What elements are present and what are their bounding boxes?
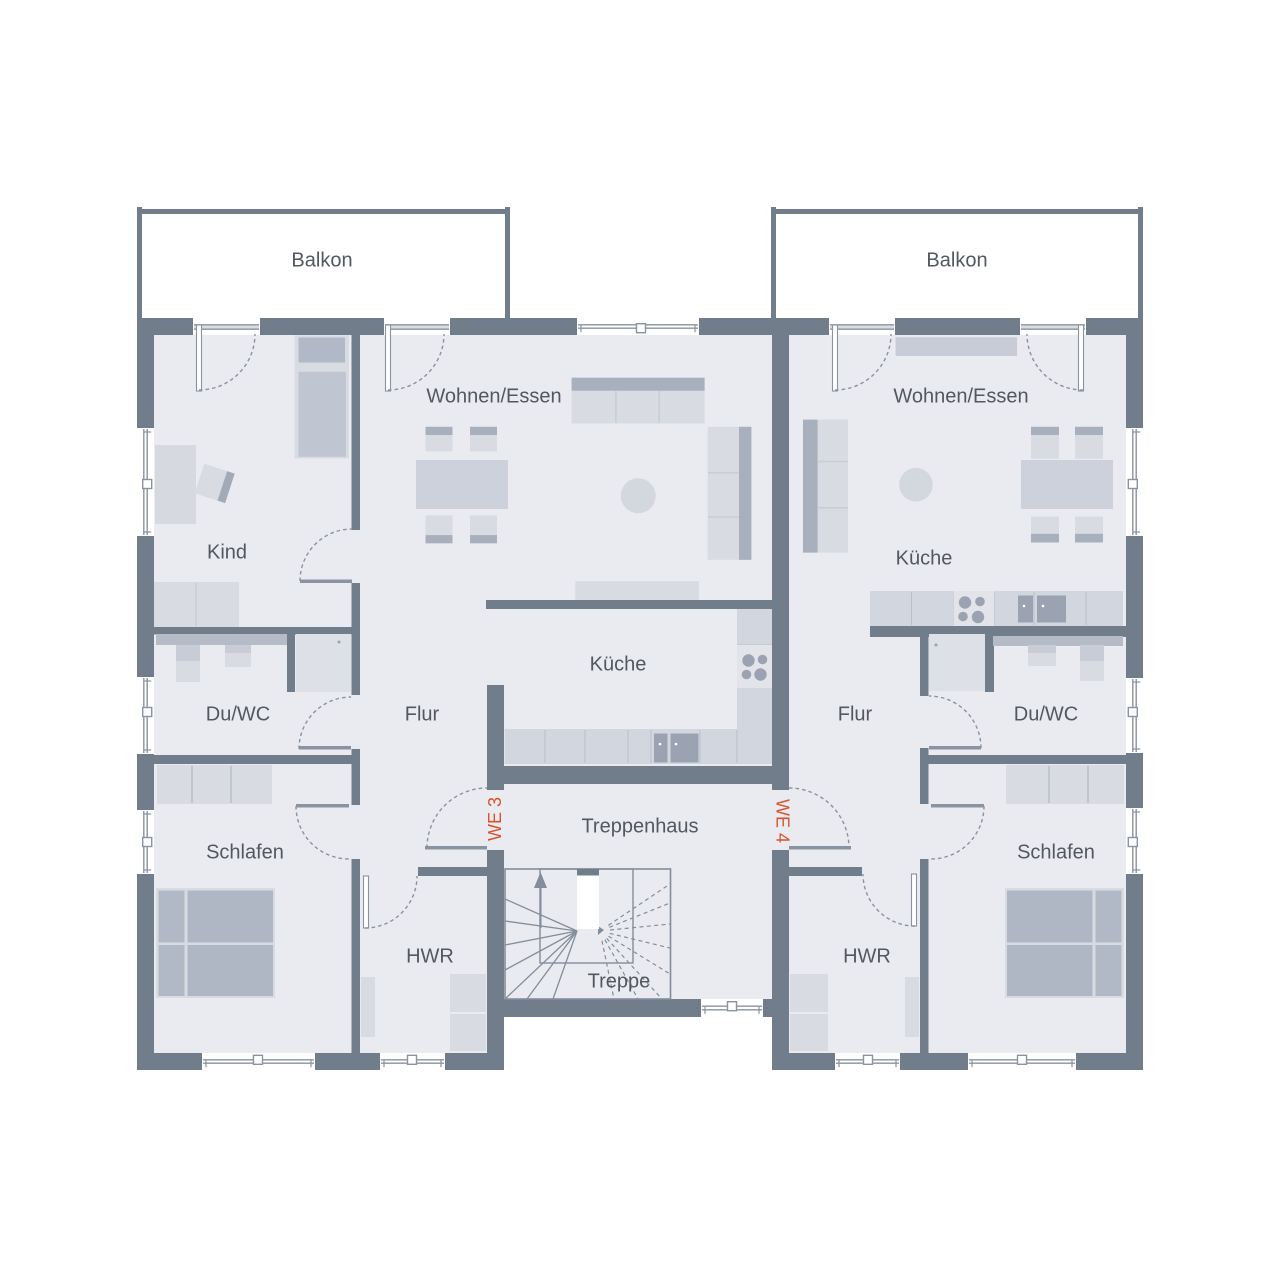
svg-text:Schlafen: Schlafen (206, 841, 284, 863)
svg-text:Wohnen/Essen: Wohnen/Essen (893, 385, 1028, 407)
svg-text:Flur: Flur (405, 703, 440, 725)
svg-text:Treppenhaus: Treppenhaus (581, 815, 698, 837)
svg-text:WE 4: WE 4 (772, 799, 792, 843)
svg-text:Du/WC: Du/WC (206, 703, 270, 725)
svg-text:WE 3: WE 3 (485, 797, 505, 841)
svg-text:Balkon: Balkon (291, 249, 352, 271)
svg-text:Küche: Küche (896, 547, 953, 569)
svg-text:Treppe: Treppe (588, 970, 651, 992)
svg-text:Küche: Küche (590, 653, 647, 675)
svg-text:HWR: HWR (406, 945, 454, 967)
svg-text:Balkon: Balkon (926, 249, 987, 271)
svg-text:Kind: Kind (207, 541, 247, 563)
svg-text:Schlafen: Schlafen (1017, 841, 1095, 863)
svg-text:Flur: Flur (838, 703, 873, 725)
svg-text:Du/WC: Du/WC (1014, 703, 1078, 725)
svg-text:Wohnen/Essen: Wohnen/Essen (426, 385, 561, 407)
svg-text:HWR: HWR (843, 945, 891, 967)
